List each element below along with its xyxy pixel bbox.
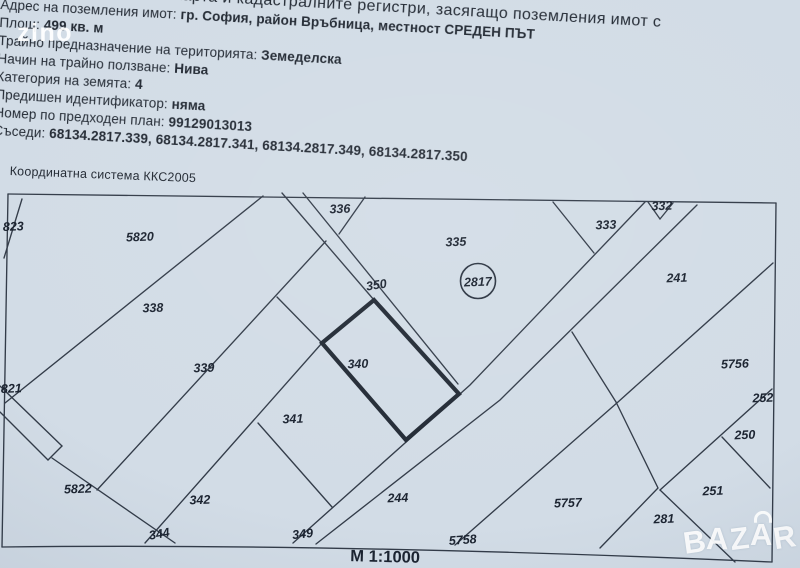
parcel-label-5758: 5758 xyxy=(448,532,477,548)
parcel-label-5756: 5756 xyxy=(721,356,750,371)
bazar-letter: Z xyxy=(728,520,752,558)
parcel-labels: 8235820336333332335241350338340339575634… xyxy=(1,199,774,548)
subject-parcel-outline xyxy=(322,300,459,440)
parcel-label-335: 335 xyxy=(445,235,467,250)
parcel-label-281: 281 xyxy=(652,512,674,527)
parcel-label-252: 252 xyxy=(751,391,773,406)
parcel-label-821: 821 xyxy=(1,381,22,396)
parcel-label-250: 250 xyxy=(733,428,755,443)
parcel-label-344: 344 xyxy=(148,525,171,542)
parcel-label-251: 251 xyxy=(701,484,723,499)
parcel-label-350: 350 xyxy=(365,276,388,293)
cadastral-map: 8235820336333332335241350338340339575634… xyxy=(0,0,800,568)
parcel-label-333: 333 xyxy=(595,218,616,233)
parcel-label-339: 339 xyxy=(193,361,214,376)
parcel-label-5822: 5822 xyxy=(64,482,92,497)
parcel-label-241: 241 xyxy=(665,271,687,286)
bazar-letter: R xyxy=(771,518,800,557)
parcel-label-336: 336 xyxy=(329,202,351,217)
parcel-label-2817: 2817 xyxy=(463,274,493,289)
shopping-bag-icon: A xyxy=(750,517,773,553)
parcel-label-342: 342 xyxy=(189,493,210,508)
parcel-label-341: 341 xyxy=(282,412,303,427)
map-scale-label: М 1:1000 xyxy=(350,547,420,567)
parcel-label-823: 823 xyxy=(3,219,24,234)
zino-watermark: zino xyxy=(17,19,73,48)
parcel-label-332: 332 xyxy=(651,199,672,214)
parcel-label-349: 349 xyxy=(291,526,313,542)
parcel-label-244: 244 xyxy=(386,491,408,506)
map-lines xyxy=(0,193,776,562)
bazar-letter: A xyxy=(706,521,730,557)
parcel-label-5757: 5757 xyxy=(554,495,583,510)
parcel-label-5820: 5820 xyxy=(126,230,154,245)
bazar-watermark: BAZAR xyxy=(682,517,797,559)
parcel-label-340: 340 xyxy=(347,357,368,372)
parcel-label-338: 338 xyxy=(142,301,163,316)
